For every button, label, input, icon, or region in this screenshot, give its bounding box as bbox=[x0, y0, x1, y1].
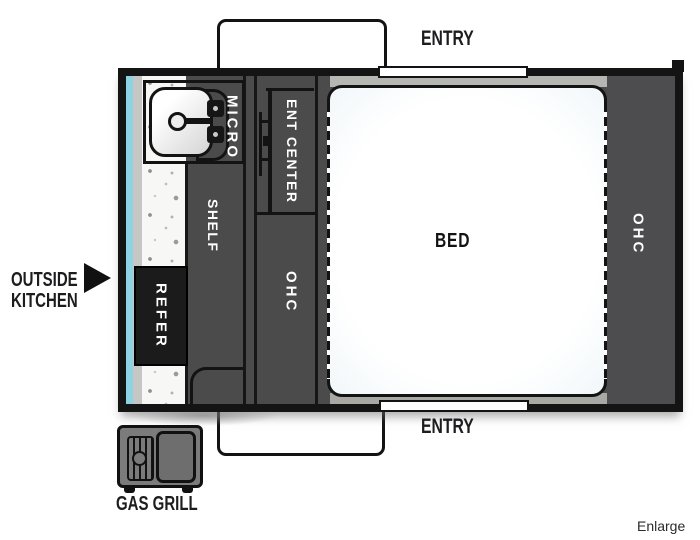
tv-mount-base bbox=[263, 136, 269, 146]
entry-door-bottom bbox=[379, 400, 529, 412]
grill-lid-icon bbox=[156, 431, 196, 483]
bed-dashed-edge-left bbox=[327, 103, 330, 379]
tv-icon bbox=[268, 88, 272, 213]
bed-dashed-edge-right bbox=[604, 103, 607, 379]
gas-grill-label: GAS GRILL bbox=[116, 494, 198, 515]
tv-bracket-arm bbox=[262, 158, 269, 161]
rv-floorplan-diagram: MICRO SHELF REFER ENT CENTER OHC BED OHC… bbox=[0, 0, 700, 540]
exterior-trim-strip bbox=[126, 76, 133, 404]
outside-kitchen-label: OUTSIDE KITCHEN bbox=[11, 270, 78, 312]
cabinet-divider-line bbox=[254, 76, 257, 404]
knob-dot bbox=[213, 132, 218, 137]
wall-corner-cap bbox=[672, 60, 684, 72]
refer-label: REFER bbox=[153, 283, 170, 349]
enlarge-link[interactable]: Enlarge bbox=[637, 518, 685, 534]
entry-door-callout-top bbox=[217, 19, 387, 73]
cabinet-divider-line bbox=[255, 212, 317, 215]
floor-shadow bbox=[128, 411, 278, 426]
knob-dot bbox=[213, 106, 218, 111]
outside-kitchen-arrow-icon bbox=[84, 263, 111, 293]
outside-kitchen-line2: KITCHEN bbox=[11, 291, 78, 312]
shelf-label: SHELF bbox=[202, 190, 224, 262]
refrigerator-block: REFER bbox=[134, 266, 188, 366]
ohc-left-label: OHC bbox=[279, 264, 303, 320]
bed-label: BED bbox=[435, 230, 470, 253]
entry-door-top bbox=[378, 66, 528, 78]
bed-area: BED bbox=[327, 85, 607, 397]
cabinet-divider-line bbox=[315, 76, 318, 404]
sink-drain-icon bbox=[168, 112, 187, 131]
outside-kitchen-line1: OUTSIDE bbox=[11, 270, 78, 291]
grill-knob-icon bbox=[132, 451, 147, 466]
entry-label-top: ENTRY bbox=[421, 28, 474, 50]
tv-bracket-arm bbox=[262, 120, 269, 123]
micro-label: MICRO bbox=[221, 86, 243, 168]
corner-cabinet-outline bbox=[190, 367, 243, 404]
ohc-right-label: OHC bbox=[626, 206, 650, 262]
entry-label-bottom: ENTRY bbox=[421, 416, 474, 438]
ent-center-label: ENT CENTER bbox=[280, 90, 304, 212]
